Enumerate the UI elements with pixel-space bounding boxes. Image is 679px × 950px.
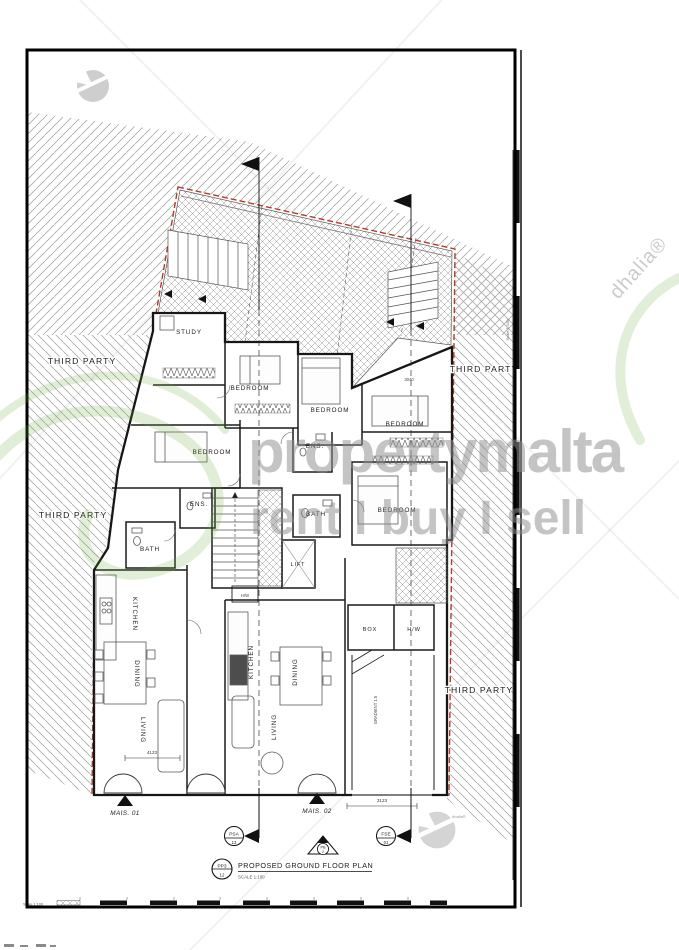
- dimension-front: 3123: [377, 798, 388, 803]
- agency-logo-stamp-top: [75, 70, 109, 102]
- room-label-kitchen-1: KITCHEN: [131, 597, 138, 631]
- plan-marker-code: PP3: [217, 864, 226, 870]
- tagline-watermark: rent I buy I sell: [250, 492, 586, 545]
- mais-01-label: MAIS. 01: [110, 810, 140, 817]
- dimension-bedroom: 3040: [404, 377, 414, 382]
- room-label-ens-2: ENS.: [190, 501, 208, 508]
- room-label-box: BOX: [363, 627, 378, 633]
- brand-watermark: propertymalta: [248, 418, 625, 485]
- room-label-living-1: LIVING: [139, 717, 146, 743]
- room-label-lift: LIFT: [291, 562, 306, 568]
- maisonette-markers: MAIS. 01 MAIS. 02: [110, 793, 332, 817]
- agency-logo-stamp-bottom: [416, 812, 455, 849]
- third-party-label-right-bottom: THIRD PARTY: [445, 685, 514, 695]
- room-label-living-2: LIVING: [271, 714, 278, 740]
- room-label-study: STUDY: [176, 329, 202, 336]
- service-shaft: [396, 548, 447, 603]
- fse-code: FSE: [381, 832, 390, 838]
- room-label-bedroom-1: BEDROOM: [231, 385, 270, 392]
- room-label-ramp-gradient: GRADIENT 1:5: [373, 695, 378, 724]
- page-edge-marks: [4, 944, 56, 947]
- north-marker-pb: PB 2: [308, 836, 338, 855]
- section-marker-psa: PSA 13: [225, 788, 260, 846]
- floor-plan-page: STUDY BEDROOM BEDROOM BEDROOM BEDROOM BE…: [0, 0, 679, 950]
- third-party-label-left-mid: THIRD PARTY: [39, 510, 108, 520]
- pb-sheet: 2: [322, 850, 324, 854]
- room-label-hw-1: H/W: [241, 593, 249, 598]
- dimension-living: 4123: [147, 750, 158, 755]
- scale-note-right: Scale 1:100: [505, 319, 510, 341]
- title-block: PP3 12 PROPOSED GROUND FLOOR PLAN SCALE …: [212, 859, 373, 880]
- fse-sheet: 01: [384, 840, 389, 845]
- floor-plan-drawing: STUDY BEDROOM BEDROOM BEDROOM BEDROOM BE…: [0, 0, 679, 950]
- psa-sheet: 13: [232, 840, 237, 845]
- third-party-label-right-top: THIRD PARTY: [450, 364, 519, 374]
- plan-scale: SCALE 1:100: [238, 875, 265, 880]
- plan-marker-sheet: 12: [220, 873, 225, 878]
- room-label-kitchen-2: KITCHEN: [248, 645, 255, 679]
- room-label-dining-2: DINING: [292, 658, 299, 685]
- psa-code: PSA: [229, 832, 239, 838]
- room-label-hw-2: H/W: [407, 627, 421, 633]
- mais-02-label: MAIS. 02: [302, 808, 332, 815]
- agency-logo-small-text: dhalia®: [452, 814, 466, 819]
- room-label-bedroom-2: BEDROOM: [311, 407, 350, 414]
- third-party-label-left-top: THIRD PARTY: [48, 356, 117, 366]
- room-label-dining-1: DINING: [133, 660, 140, 687]
- plan-title: PROPOSED GROUND FLOOR PLAN: [238, 861, 373, 870]
- room-label-bath-1: BATH: [140, 546, 160, 553]
- yard-stair-right: [388, 262, 438, 328]
